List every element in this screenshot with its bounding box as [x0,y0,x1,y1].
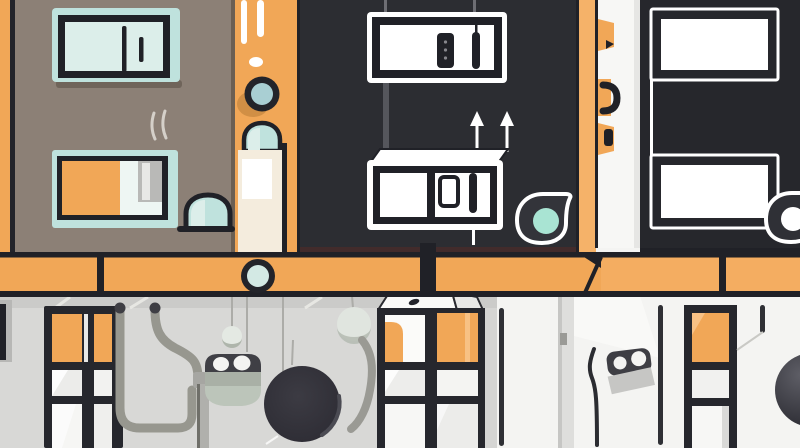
service-strip [576,0,640,252]
conduit-stub [760,305,765,333]
pipe-cap-right [150,303,161,314]
white-basement [497,296,800,448]
taupe-wall [0,0,235,256]
meter-band [205,372,261,386]
ceiling-wire-right [473,0,476,13]
illustration-canvas [0,0,800,448]
ac-vent-line-long [122,26,127,72]
boiler-window [440,177,458,206]
petal-badge-mint [517,194,570,243]
pillar-dome-vent [244,123,280,151]
pane-orange-corner [385,322,403,362]
dark-room [640,0,800,255]
paint-drip-right [257,0,264,37]
pane-orange-right [94,314,112,362]
charcoal-room [300,0,580,255]
heater-handle [472,32,480,69]
wall-heater-upper [367,12,507,83]
ac-glass [65,22,163,71]
ac-unit [52,8,182,88]
pane-lower-right [94,404,112,448]
illustration-stage [0,0,800,448]
boiler-handle [469,173,477,213]
meter-dial-right [234,356,251,371]
pane-gray-right [94,370,112,396]
orange-pillar [235,0,303,256]
strip-orange-column [579,0,596,252]
meter-base [205,386,261,406]
pillar-cabinet [238,143,287,252]
basement-window-left [44,306,123,448]
window-connector-line [650,80,653,156]
left-edge-seam [10,0,15,252]
radiator-pane-mid [692,370,729,398]
paint-drop [249,57,263,67]
panel-tab [560,333,567,345]
beam-top-edge [0,252,800,258]
strip-bracket-bottom [598,123,614,155]
strip-bracket-hook [598,79,617,116]
pipe-cap-left [115,303,126,314]
stove-unit [52,150,178,228]
beam-joint-right [719,257,726,292]
heater-stem [475,17,478,33]
stove-door [62,161,120,215]
dark-room-window-lower [651,155,778,228]
gas-meter [205,354,261,406]
cabinet-panel [242,159,272,199]
conduit-line-2 [658,305,663,445]
hanging-bulb [222,326,242,348]
ceiling-wire-left [384,0,387,14]
pane-orange [437,313,478,362]
mint-dot [533,208,559,234]
stove-vent-highlight [142,163,150,200]
ac-vent-line-short [139,37,144,62]
radiator-column [684,305,737,448]
basement-window-center [377,292,497,448]
pane-orange-left [52,314,82,362]
beam-porthole [241,259,275,293]
cabinet-edge [282,143,287,252]
dome-baseline [177,226,235,232]
beam-joint-left [97,257,104,292]
beam-bottom-edge [0,291,800,297]
beam-post [420,243,436,295]
dark-room-window-upper [651,9,778,80]
boiler-divider [427,170,435,220]
petal-badge-white [766,193,800,242]
conduit-line-1 [499,308,504,446]
meter-dial-left [213,357,229,371]
boiler-drain [472,230,475,245]
paint-drip-left [241,0,247,44]
strip-bracket-top [598,19,614,51]
